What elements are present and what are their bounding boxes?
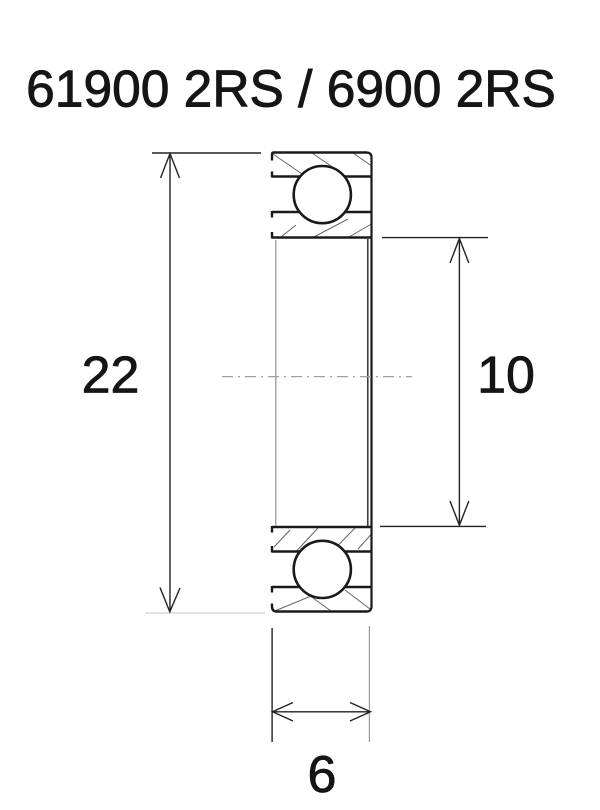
svg-text:10: 10 <box>477 347 535 405</box>
svg-text:22: 22 <box>82 347 140 405</box>
svg-text:6: 6 <box>308 746 337 804</box>
svg-text:61900 2RS / 6900 2RS: 61900 2RS / 6900 2RS <box>26 60 556 118</box>
